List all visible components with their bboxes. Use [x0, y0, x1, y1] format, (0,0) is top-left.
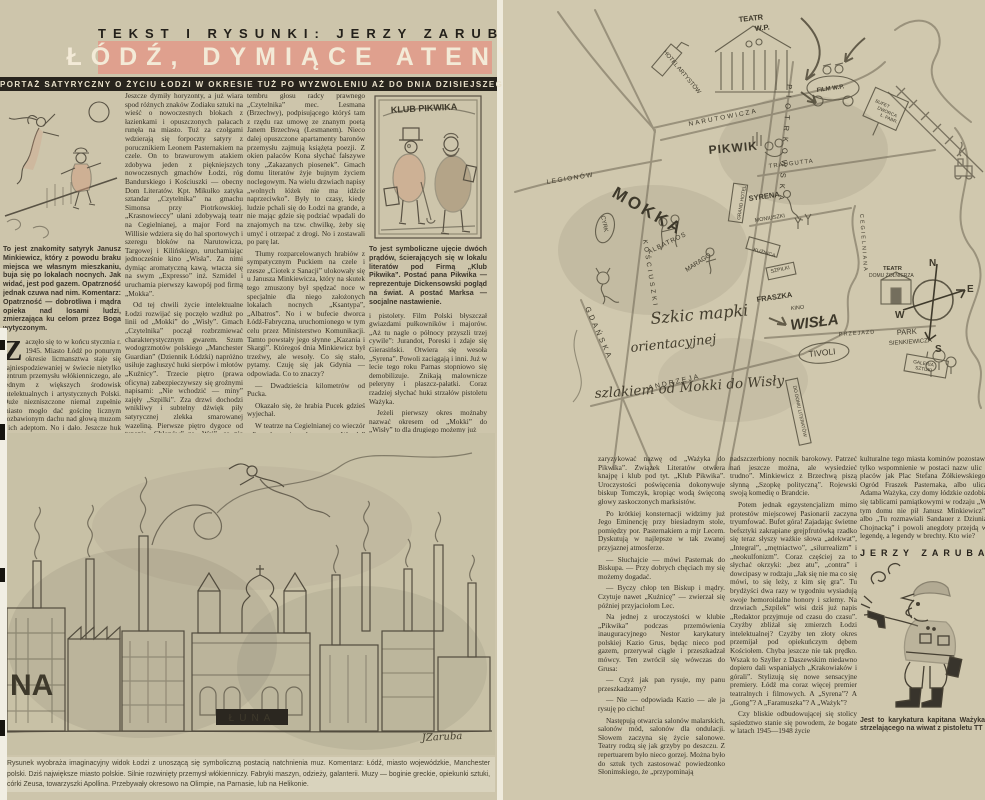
map-street-legionow: LEGIONÓW	[546, 170, 595, 186]
map-label-wisla: WISŁA	[789, 311, 839, 334]
map-label-teatr-domu-2: DOMU ŻOŁNIERZA	[869, 272, 914, 279]
sketch-map: N E S W MOKKA HOTEL ARTYSTÓW TEATR W.P. …	[503, 0, 985, 470]
body-paragraph: Okazało się, że hrabia Pucek gdzieś wyje…	[247, 402, 365, 419]
right-column-1: zaryzykować nazwę od „Ważyka do Pikwika”…	[598, 455, 725, 800]
body-paragraph: Następują otwarcia salonów malarskich, s…	[598, 717, 725, 777]
map-label-fraszka: FRASZKA	[756, 290, 793, 304]
map-label-tivoli: TIVOLI	[808, 346, 836, 359]
body-paragraph: Po krótkiej konsternacji widzimy już Jeg…	[598, 510, 725, 553]
map-label-hotel-artystow: HOTEL ARTYSTÓW	[661, 49, 702, 96]
body-paragraph: — Byczy chłop ten Biskup i mądry. Czytuj…	[598, 584, 725, 610]
body-paragraph: tembru głosu radcy prawnego „Czytelnika”…	[247, 92, 365, 247]
klub-pikwika-sign: KLUB PIKWIKA	[391, 102, 458, 115]
magazine-spread: TEKST I RYSUNKI: JERZY ZARUBA ŁÓDŹ, DYMI…	[0, 0, 985, 800]
artist-signature: JZaruba	[420, 731, 463, 744]
intro-paragraph: Zaczęło się to w końcu stycznia r. 1945.…	[3, 338, 121, 433]
map-label-teatr-wp: TEATR	[738, 12, 764, 24]
map-label-kino: KINO	[791, 305, 806, 312]
map-label-grand-hotel: GRAND HOTEL	[736, 185, 748, 220]
map-label-film-wp: FILM W.P.	[816, 84, 844, 94]
left-column-4: KLUB PIKWIKA To jest symboliczne ujęcie …	[369, 92, 487, 433]
caricature-caption: Jest to karykatura kapitana Ważyka, strz…	[860, 717, 985, 735]
figure1-caption: To jest znakomity satyryk Janusz Minkiew…	[3, 245, 121, 333]
body-paragraph: Jeżeli pierwszy okres możnaby nazwać okr…	[369, 409, 487, 433]
left-column-2: Jeszcze dymiły horyzonty, a już wiara sp…	[125, 92, 243, 433]
title-band: ŁÓDŹ, DYMIĄCE ATENY	[98, 41, 492, 74]
subtitle-bar: ( REPORTAŻ SATYRYCZNY O ŻYCIU ŁODZI W OK…	[0, 77, 497, 91]
drawing-letters-na: NA	[10, 669, 53, 702]
body-paragraph: — Dwadzieścia kilometrów od Pucka.	[247, 382, 365, 399]
body-paragraph: nadszczerbiony nocnik barokowy. Patrzeć …	[730, 455, 857, 498]
tightrope-cartoon	[3, 92, 121, 242]
body-paragraph: kulturalne tego miasta kominów pozostawi…	[860, 455, 985, 541]
body-paragraph: zaryzykować nazwę od „Ważyka do Pikwika”…	[598, 455, 725, 507]
compass-e: E	[967, 284, 974, 295]
body-paragraph: — Czyż jak pan rysuje, my panu przeszkad…	[598, 676, 725, 693]
body-paragraph: Czy bliskie odbudowującej się stolicy są…	[730, 710, 857, 736]
body-paragraph: Jeszcze dymiły horyzonty, a już wiara sp…	[125, 92, 243, 298]
map-label-park: PARK	[897, 327, 917, 337]
compass-s: S	[935, 344, 942, 355]
body-paragraph: W teatrze na Cegielnianej co wieczór odb…	[247, 422, 365, 433]
left-column-3: tembru głosu radcy prawnego „Czytelnika”…	[247, 92, 365, 433]
map-label-kuznica: KUŹNICA	[752, 246, 776, 259]
compass-n: N	[929, 258, 936, 269]
body-paragraph: i pistolety. Film Polski błyszczał gwiaz…	[369, 312, 487, 407]
kicker: TEKST I RYSUNKI: JERZY ZARUBA	[98, 26, 492, 41]
map-label-park-2: SIENKIEWICZA	[889, 338, 932, 347]
body-paragraph: — Słuchajcie — mówi Pasternak do Biskupa…	[598, 556, 725, 582]
author-byline: JERZY ZARUBA	[860, 548, 985, 558]
left-column-1: To jest znakomity satyryk Janusz Minkiew…	[3, 92, 121, 433]
compass-w: W	[895, 310, 905, 321]
page-right: N E S W MOKKA HOTEL ARTYSTÓW TEATR W.P. …	[503, 0, 985, 800]
building-marquee: ŁUNA	[229, 713, 276, 724]
body-paragraph: Potem jednak egzystencjalizm mimo protes…	[730, 501, 857, 707]
body-paragraph: Tłumy rozparcelowanych hrabiów z sympaty…	[247, 250, 365, 379]
body-paragraph: — Nie — odpowiada Kazio — ale ja rysuję …	[598, 696, 725, 713]
body-paragraph: Od tej chwili życie intelektualne Łodzi …	[125, 301, 243, 433]
right-column-2: nadszczerbiony nocnik barokowy. Patrzeć …	[730, 455, 857, 800]
page-left: TEKST I RYSUNKI: JERZY ZARUBA ŁÓDŹ, DYMI…	[0, 0, 497, 800]
railway	[888, 86, 983, 179]
page-title: ŁÓDŹ, DYMIĄCE ATENY	[66, 43, 523, 72]
scan-edge	[0, 328, 7, 800]
map-street-gdanska: GDAŃSKA	[583, 305, 615, 361]
wazyk-caricature	[860, 562, 985, 712]
city-panorama-drawing: ŁUNA NA JZaruba	[2, 433, 495, 755]
city-drawing-caption: Rysunek wyobraża imaginacyjny widok Łodz…	[2, 757, 495, 792]
figure2-caption: To jest symboliczne ujęcie dwóch prądów,…	[369, 245, 487, 307]
klub-pikwika-cartoon: KLUB PIKWIKA	[369, 92, 487, 242]
map-street-przejazd: PRZEJAZD	[839, 329, 876, 338]
subtitle: ( REPORTAŻ SATYRYCZNY O ŻYCIU ŁODZI W OK…	[0, 80, 519, 89]
map-label-teatr-wp-2: W.P.	[754, 22, 770, 33]
body-paragraph: Na jednej z uroczystości w klubie „Pikwi…	[598, 613, 725, 673]
right-column-3: kulturalne tego miasta kominów pozostawi…	[860, 455, 985, 800]
map-label-teatr-domu: TEATR	[883, 266, 903, 272]
